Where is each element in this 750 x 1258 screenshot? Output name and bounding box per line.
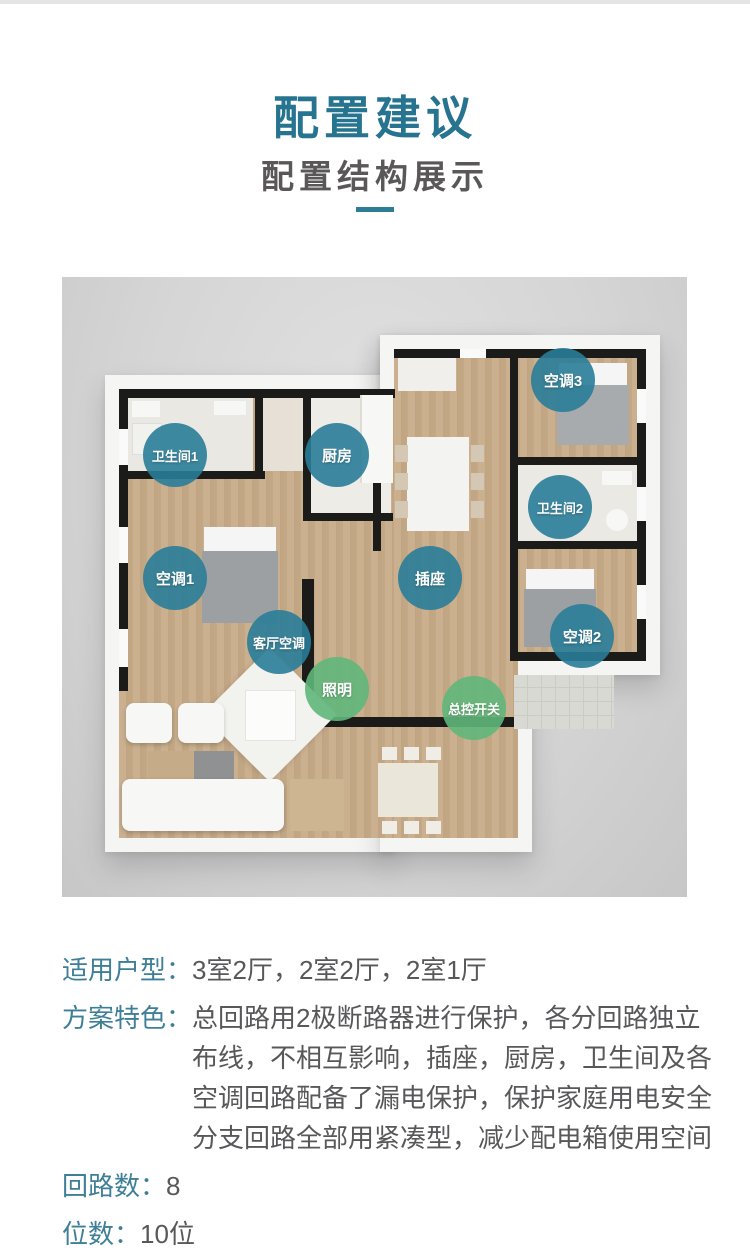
spec-content: 3室2厅，2室2厅，2室1厅 — [192, 950, 487, 990]
bathroom-fixture — [132, 401, 160, 417]
page-title: 配置建议 — [0, 82, 750, 148]
patio-tiles — [514, 675, 614, 729]
bed-pillow — [526, 569, 594, 589]
badge-living-ac: 客厅空调 — [247, 610, 311, 674]
chair — [471, 445, 484, 462]
spec-colon: ： — [166, 998, 192, 1038]
bathroom-fixture — [606, 509, 628, 531]
window — [637, 585, 646, 619]
badge-label: 卫生间1 — [152, 446, 198, 465]
spec-content: 8 — [166, 1166, 180, 1206]
chair — [426, 747, 441, 760]
spec-label: 适用户型 — [62, 950, 166, 990]
sofa — [122, 779, 284, 831]
window — [119, 429, 128, 465]
spec-line: 3室2厅，2室2厅，2室1厅 — [192, 950, 487, 990]
wall — [510, 457, 646, 465]
page: 配置建议 配置结构展示 — [0, 0, 750, 1258]
spec-content: 10位 — [140, 1214, 195, 1254]
spec-line: 总回路用2极断路器进行保护，各分回路独立 — [192, 998, 712, 1038]
badge-label: 空调3 — [544, 370, 582, 391]
badge-label: 空调1 — [156, 568, 194, 589]
badge-ac3: 空调3 — [531, 348, 595, 412]
window — [637, 487, 646, 521]
badge-master-switch: 总控开关 — [442, 676, 506, 740]
badge-lighting: 照明 — [305, 657, 369, 721]
badge-label: 厨房 — [322, 445, 352, 466]
spec-colon: ： — [166, 950, 192, 990]
chair — [404, 747, 419, 760]
side-table — [290, 779, 344, 831]
badge-ac2: 空调2 — [550, 604, 614, 668]
chair — [382, 821, 397, 834]
badge-label: 插座 — [415, 568, 445, 589]
badge-ac1: 空调1 — [143, 546, 207, 610]
wall — [255, 389, 263, 479]
window — [119, 527, 128, 563]
spec-label: 方案特色 — [62, 998, 166, 1038]
spec-label: 位数 — [62, 1214, 114, 1254]
spec-line: 8 — [166, 1166, 180, 1206]
top-strip — [0, 0, 750, 4]
chair — [395, 501, 408, 518]
chair — [471, 473, 484, 490]
spec-row-features: 方案特色： 总回路用2极断路器进行保护，各分回路独立 布线，不相互影响，插座，厨… — [62, 998, 712, 1158]
badge-bathroom2: 卫生间2 — [528, 475, 592, 539]
window — [637, 389, 646, 423]
spec-row-circuits: 回路数： 8 — [62, 1166, 712, 1206]
dining-table-bottom — [378, 763, 438, 817]
badge-label: 空调2 — [563, 626, 601, 647]
dining-table — [407, 437, 469, 531]
chair — [382, 747, 397, 760]
badge-label: 总控开关 — [448, 699, 500, 718]
badge-kitchen: 厨房 — [305, 423, 369, 487]
badge-label: 客厅空调 — [253, 633, 305, 652]
spec-line: 空调回路配备了漏电保护，保护家庭用电安全 — [192, 1078, 712, 1118]
spec-line: 10位 — [140, 1214, 195, 1254]
armchair — [178, 703, 224, 743]
badge-label: 卫生间2 — [537, 498, 583, 517]
hall-closet — [261, 395, 303, 471]
bathroom-fixture — [602, 471, 632, 485]
window — [119, 629, 128, 667]
chair — [395, 445, 408, 462]
bed-pillow — [204, 527, 276, 551]
wall — [510, 541, 646, 549]
chair — [395, 473, 408, 490]
badge-socket: 插座 — [398, 546, 462, 610]
spec-row-modules: 位数： 10位 — [62, 1214, 712, 1254]
bathroom-fixture — [214, 401, 246, 415]
badge-label: 照明 — [322, 679, 352, 700]
armchair — [126, 703, 172, 743]
chair — [471, 501, 484, 518]
spec-list: 适用户型： 3室2厅，2室2厅，2室1厅 方案特色： 总回路用2极断路器进行保护… — [62, 950, 712, 1258]
badge-bathroom1: 卫生间1 — [143, 423, 207, 487]
spec-content: 总回路用2极断路器进行保护，各分回路独立 布线，不相互影响，插座，厨房，卫生间及… — [192, 998, 712, 1158]
spec-colon: ： — [140, 1166, 166, 1206]
chair — [404, 821, 419, 834]
wall — [510, 349, 518, 661]
spec-line: 分支回路全部用紧凑型，减少配电箱使用空间 — [192, 1118, 712, 1158]
wall — [394, 349, 646, 358]
spec-label: 回路数 — [62, 1166, 140, 1206]
spec-colon: ： — [114, 1214, 140, 1254]
chair — [426, 821, 441, 834]
spec-row-house-type: 适用户型： 3室2厅，2室2厅，2室1厅 — [62, 950, 712, 990]
rug-table — [245, 690, 296, 741]
spec-line: 布线，不相互影响，插座，厨房，卫生间及各 — [192, 1038, 712, 1078]
door-gap — [460, 349, 486, 358]
page-subtitle: 配置结构展示 — [0, 150, 750, 198]
title-divider — [356, 207, 394, 212]
floorplan-image: 卫生间1 厨房 空调3 卫生间2 空调1 插座 空调2 客厅空调 照明 总控开关 — [62, 277, 687, 897]
